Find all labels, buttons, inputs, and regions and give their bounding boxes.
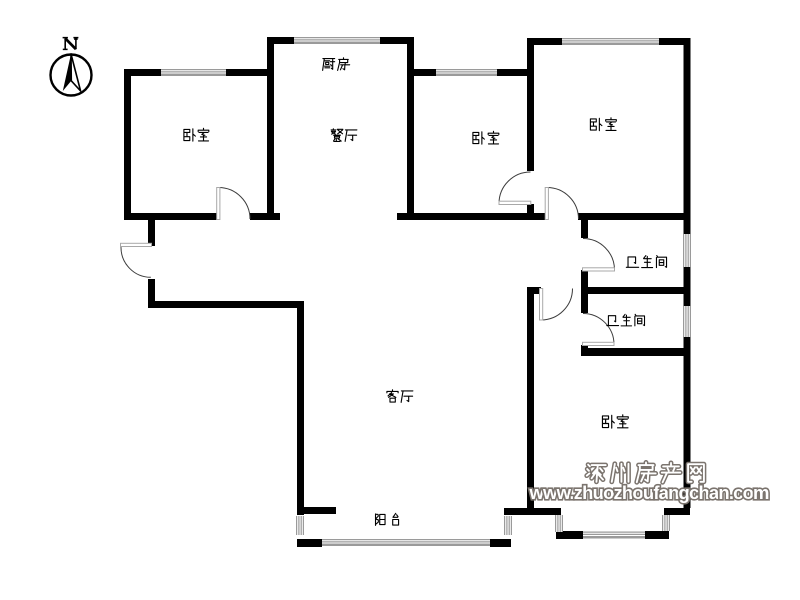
svg-text:www.zhuozhoufangchan.com: www.zhuozhoufangchan.com xyxy=(529,482,770,503)
